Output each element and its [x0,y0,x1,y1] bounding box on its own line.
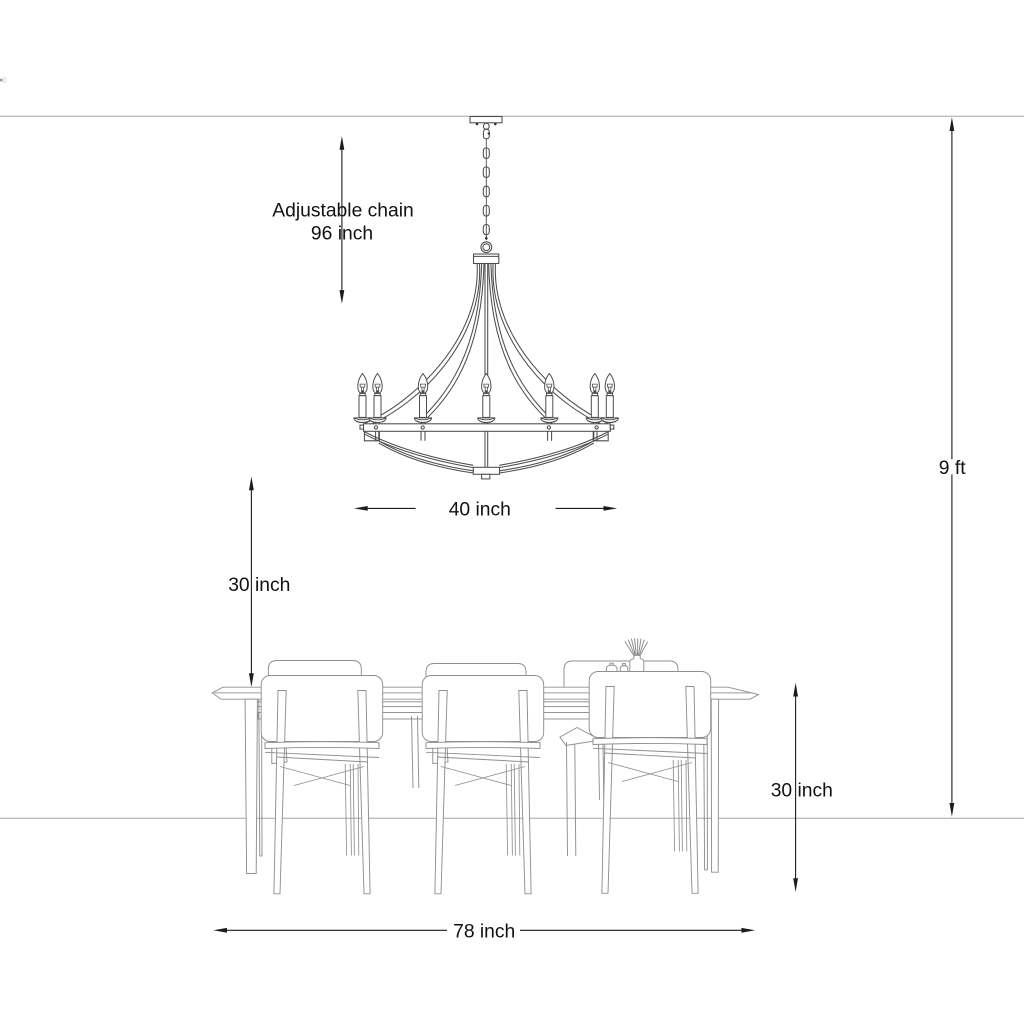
svg-text:78 inch: 78 inch [453,922,515,943]
svg-text:30 inch: 30 inch [228,575,290,596]
svg-text:40 inch: 40 inch [449,499,511,520]
svg-text:9 ft: 9 ft [939,458,966,479]
svg-text:96 inch: 96 inch [311,223,373,244]
svg-text:Adjustable chain: Adjustable chain [272,201,414,222]
svg-text:30 inch: 30 inch [771,780,833,801]
